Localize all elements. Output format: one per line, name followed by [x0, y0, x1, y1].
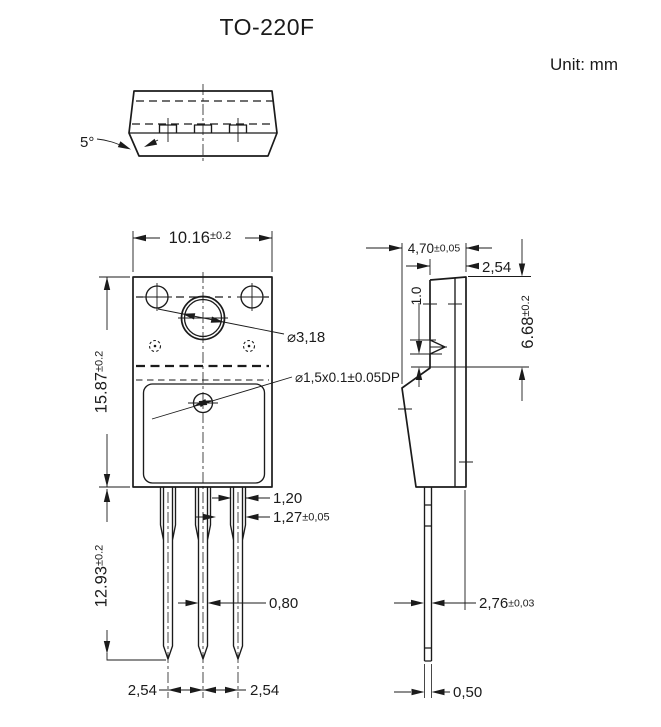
- dim-lead-offset: 2,76±0,03: [479, 595, 535, 612]
- page-title: TO-220F: [219, 14, 314, 40]
- dim-flange-height: 6.68±0.2: [519, 295, 537, 348]
- side-lead: [425, 487, 432, 661]
- recess-outline: [144, 384, 265, 483]
- dim-tab-thickness-arrows: [417, 263, 479, 269]
- front-view: 10.16±0.2 15.87±0.2 12.93±0.2 ⌀3,18 ⌀1,5…: [93, 229, 400, 699]
- dim-lead-pitch-assembly: 2,54 2,54: [128, 682, 279, 699]
- header: TO-220F Unit: mm: [219, 14, 618, 74]
- side-dimple-extension-lines: [410, 340, 529, 367]
- dim-width-assembly: 10.16±0.2: [133, 229, 272, 272]
- drawing-page: TO-220F Unit: mm 5°: [0, 0, 661, 722]
- dim-lead-thickness-arrows: [412, 689, 445, 695]
- dim-tab-thickness: 2,54: [482, 259, 511, 276]
- dim-dimple-offset: 1.0: [409, 287, 424, 306]
- dim-body-thickness: 4,70±0,05: [408, 241, 461, 256]
- leader-dimple-line: [152, 377, 292, 419]
- dim-lead-offset-assembly: 2,76±0,03: [394, 490, 535, 612]
- label-dimple: ⌀1,5x0.1±0.05DP: [295, 370, 400, 385]
- angle-leader-arrow-right: [143, 139, 157, 150]
- dim-tab-thickness-lines: [406, 259, 479, 275]
- pin-mark-right-dot: [248, 345, 251, 348]
- dim-pitch-right: 2,54: [250, 682, 279, 699]
- dim-body-thickness-assembly: 4,70±0,05: [366, 241, 492, 384]
- dim-lead-thickness-assembly: 0,50: [394, 684, 482, 701]
- side-lead-extension-lines: [425, 664, 432, 698]
- dim-lead-length-lines: [107, 489, 166, 660]
- unit-label: Unit: mm: [550, 55, 618, 74]
- dim-lead-offset-lines: [394, 490, 476, 610]
- dim-body-height-assembly: 15.87±0.2: [93, 277, 131, 487]
- dim-lead-base-width-assembly: 1,20: [212, 490, 302, 507]
- front-centerlines: [168, 272, 238, 698]
- angle-label: 5°: [80, 134, 94, 151]
- top-view: 5°: [80, 84, 277, 163]
- dim-lead-offset-arrows: [411, 600, 445, 606]
- dim-lead-shoulder-width-assembly: 1,27±0,05: [196, 509, 330, 526]
- dim-lead-base-width: 1,20: [273, 490, 302, 507]
- leader-dimple: ⌀1,5x0.1±0.05DP: [152, 370, 400, 419]
- dim-pitch-left: 2,54: [128, 682, 157, 699]
- pin-mark-left-dot: [154, 345, 157, 348]
- side-view: 4,70±0,05 2,54 1.0 6.68±0.2 2,76±0,03: [366, 239, 537, 701]
- dim-body-height: 15.87±0.2: [93, 351, 111, 414]
- dim-lead-base-width-arrows: [219, 495, 259, 501]
- technical-drawing: TO-220F Unit: mm 5°: [0, 0, 661, 722]
- angle-leader-arrow-left: [118, 141, 132, 152]
- dim-lead-shoulder-width: 1,27±0,05: [273, 509, 330, 526]
- dim-lead-length-assembly: 12.93±0.2: [93, 489, 167, 660]
- dim-lead-length: 12.93±0.2: [93, 545, 111, 608]
- label-mounting-hole: ⌀3,18: [287, 329, 325, 346]
- dim-lead-thickness: 0,50: [453, 684, 482, 701]
- dim-tab-thickness-assembly: 2,54: [406, 259, 511, 276]
- top-view-hidden-lines: [132, 101, 275, 124]
- dim-width: 10.16±0.2: [169, 229, 232, 247]
- dim-body-thickness-lines: [366, 243, 492, 384]
- side-profile-outline: [402, 277, 466, 487]
- dim-lead-tip-width: 0,80: [269, 595, 298, 612]
- dim-dimple-offset-assembly: 1.0: [409, 287, 424, 387]
